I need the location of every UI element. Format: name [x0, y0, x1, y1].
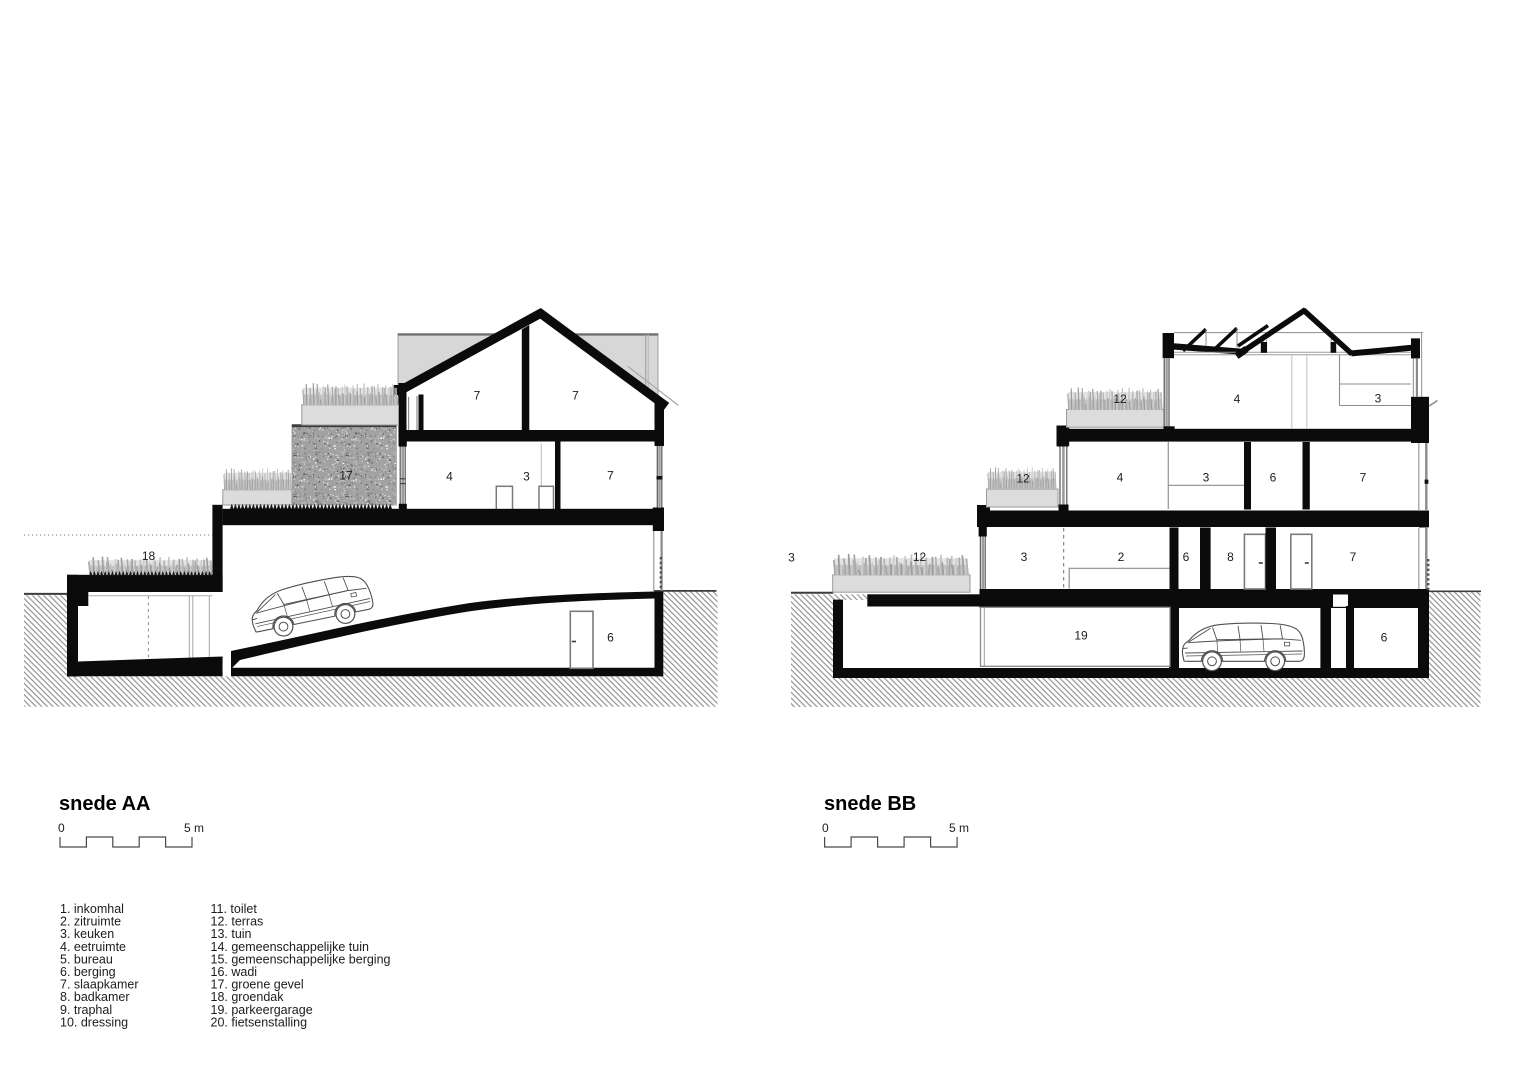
svg-text:6: 6 [1270, 471, 1277, 485]
svg-text:7: 7 [474, 389, 481, 403]
svg-text:20. fietsenstalling: 20. fietsenstalling [211, 1015, 308, 1029]
svg-text:7: 7 [1350, 550, 1357, 564]
svg-text:6: 6 [607, 631, 614, 645]
svg-text:3: 3 [523, 470, 530, 484]
svg-text:10. dressing: 10. dressing [60, 1015, 128, 1029]
svg-text:8: 8 [1227, 550, 1234, 564]
svg-text:6: 6 [1183, 550, 1190, 564]
svg-text:3: 3 [1021, 550, 1028, 564]
svg-text:0: 0 [822, 821, 829, 835]
svg-text:17: 17 [339, 469, 353, 483]
svg-text:4: 4 [1234, 392, 1241, 406]
svg-text:12: 12 [1113, 392, 1127, 406]
svg-text:2: 2 [1118, 550, 1125, 564]
svg-text:7: 7 [607, 469, 614, 483]
svg-text:0: 0 [58, 821, 65, 835]
svg-text:4: 4 [446, 470, 453, 484]
svg-text:19: 19 [1074, 629, 1088, 643]
svg-text:5 m: 5 m [949, 821, 969, 835]
svg-text:3: 3 [1203, 471, 1210, 485]
svg-text:5 m: 5 m [184, 821, 204, 835]
svg-text:3: 3 [1375, 392, 1382, 406]
svg-text:7: 7 [1360, 471, 1367, 485]
svg-text:snede AA: snede AA [59, 793, 151, 815]
svg-text:12: 12 [1016, 472, 1030, 486]
svg-text:6: 6 [1381, 631, 1388, 645]
svg-text:snede BB: snede BB [824, 793, 916, 815]
svg-text:4: 4 [1117, 471, 1124, 485]
svg-text:7: 7 [572, 389, 579, 403]
svg-text:12: 12 [913, 550, 927, 564]
svg-text:3: 3 [788, 551, 795, 565]
svg-text:18: 18 [142, 549, 156, 563]
